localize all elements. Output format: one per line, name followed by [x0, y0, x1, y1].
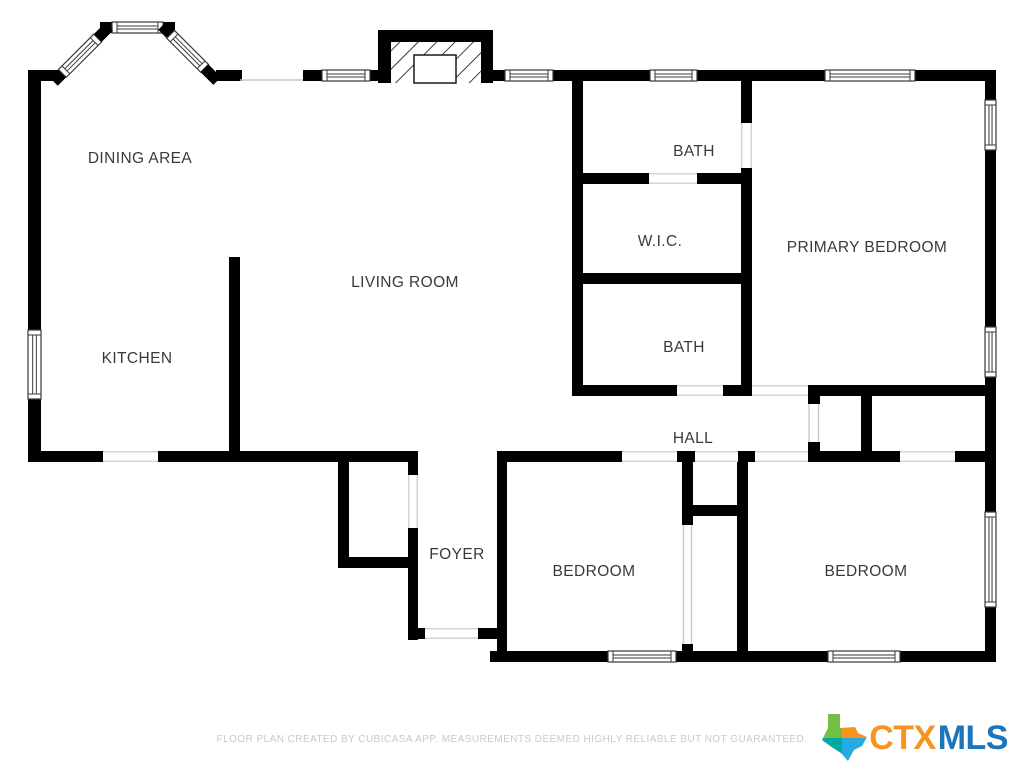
room-label-primary-bedroom: PRIMARY BEDROOM	[787, 239, 947, 256]
wall	[985, 377, 996, 512]
wall	[682, 462, 693, 525]
window-frame	[825, 70, 915, 81]
window-frame	[828, 651, 900, 662]
window	[985, 327, 996, 377]
door-opening	[695, 451, 738, 462]
door-opening	[649, 173, 697, 184]
window	[985, 100, 996, 150]
wall	[985, 70, 996, 100]
wall	[229, 257, 240, 451]
wall	[808, 385, 985, 396]
window-frame	[650, 70, 697, 81]
wall	[861, 395, 872, 451]
room-label-bath-top: BATH	[673, 143, 715, 160]
wall	[497, 451, 622, 462]
bay-window-right	[158, 22, 221, 85]
wall	[808, 395, 820, 404]
door-opening	[755, 451, 808, 462]
window-frame	[322, 70, 370, 81]
wall	[808, 451, 900, 462]
window	[650, 70, 697, 81]
wall	[338, 462, 349, 557]
room-label-bath-lower: BATH	[663, 339, 705, 356]
window	[167, 30, 209, 72]
wall	[28, 70, 41, 330]
room-label-living-room: LIVING ROOM	[351, 274, 459, 291]
door-opening	[103, 451, 158, 462]
door-gap	[677, 385, 723, 396]
texas-icon	[817, 714, 867, 762]
wall	[497, 452, 507, 662]
door-opening	[741, 123, 752, 168]
door-opening	[622, 451, 677, 462]
wall	[553, 70, 650, 81]
window	[322, 70, 370, 81]
door-opening	[408, 475, 418, 528]
wall	[985, 607, 996, 662]
firebox	[414, 55, 456, 83]
wall	[682, 644, 693, 651]
window	[112, 22, 163, 33]
wall	[408, 528, 418, 640]
window	[505, 70, 553, 81]
door-gap	[741, 123, 752, 168]
room-label-dining-area: DINING AREA	[88, 150, 193, 167]
wall	[697, 70, 825, 81]
door-gap	[900, 451, 955, 462]
window-frame	[167, 30, 209, 72]
wall	[676, 651, 828, 662]
wall	[677, 451, 695, 462]
bay-window-left	[50, 23, 113, 86]
ctxmls-logo: CTXMLS	[817, 712, 1008, 764]
door-opening	[752, 385, 808, 396]
door-gap	[425, 628, 478, 639]
wall	[490, 651, 608, 662]
wall	[741, 168, 752, 385]
door-opening	[677, 385, 723, 396]
wall	[572, 273, 752, 284]
window	[608, 651, 676, 662]
window	[58, 34, 101, 77]
floor-plan: DINING AREA LIVING ROOM KITCHEN BATH W.I…	[0, 0, 1024, 768]
window	[985, 512, 996, 607]
fireplace	[378, 30, 493, 83]
room-label-foyer: FOYER	[429, 546, 484, 563]
wall	[572, 173, 649, 184]
wall	[303, 70, 322, 81]
room-label-bedroom-left: BEDROOM	[553, 563, 636, 580]
wall	[408, 452, 418, 475]
window-frame	[505, 70, 553, 81]
wall	[741, 81, 752, 123]
wall	[808, 442, 820, 452]
wall	[900, 651, 996, 662]
logo-text-ctx: CTX	[869, 712, 936, 764]
window-frame	[985, 100, 996, 150]
window	[28, 330, 41, 399]
window-frame	[985, 327, 996, 377]
room-label-hall: HALL	[673, 430, 713, 447]
wall	[338, 557, 418, 568]
door-gap	[622, 451, 677, 462]
wall	[985, 150, 996, 327]
wall	[572, 385, 677, 396]
wall	[738, 451, 755, 462]
door-opening	[425, 628, 478, 639]
wall	[737, 462, 748, 651]
wall	[572, 81, 583, 385]
door-gap	[103, 451, 158, 462]
window-frame	[985, 512, 996, 607]
wall	[915, 70, 996, 81]
floor-plan-page: DINING AREA LIVING ROOM KITCHEN BATH W.I…	[0, 0, 1024, 768]
room-label-bedroom-right: BEDROOM	[825, 563, 908, 580]
window-frame	[28, 330, 41, 399]
window-frame	[112, 22, 163, 33]
door-gap	[408, 475, 418, 528]
door-gap	[649, 173, 697, 184]
room-label-wic: W.I.C.	[638, 233, 683, 250]
door-gap	[695, 451, 738, 462]
door-gap	[752, 385, 808, 396]
wall	[216, 70, 242, 81]
window	[828, 651, 900, 662]
wall	[158, 451, 418, 462]
wall	[955, 451, 985, 462]
wall	[28, 399, 41, 461]
room-label-kitchen: KITCHEN	[102, 350, 173, 367]
wall	[723, 385, 752, 396]
door-opening	[900, 451, 955, 462]
window-frame	[608, 651, 676, 662]
door-gap	[755, 451, 808, 462]
logo-text-mls: MLS	[938, 712, 1008, 764]
window	[825, 70, 915, 81]
window-frame	[58, 34, 101, 77]
